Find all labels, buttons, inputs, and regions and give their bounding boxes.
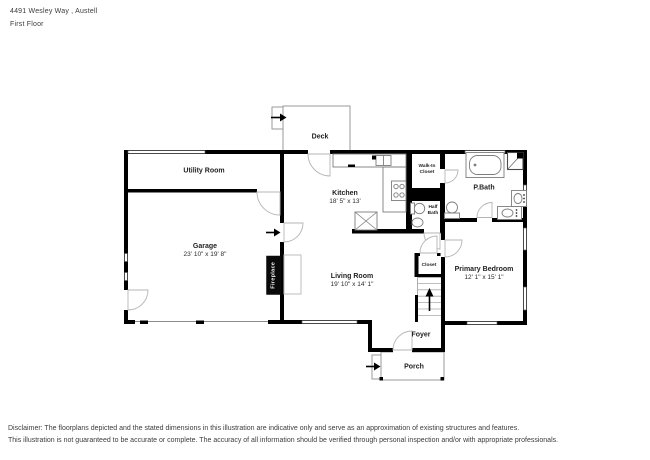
stove xyxy=(392,181,407,201)
pbath-wall-sink xyxy=(512,191,527,207)
kitchen-island xyxy=(355,212,377,230)
room-label-deck: Deck xyxy=(312,132,329,141)
fireplace-label: Fireplace xyxy=(271,262,277,289)
floorplan-drawing xyxy=(0,0,650,460)
room-label-garage: Garage 23' 10" x 19' 8" xyxy=(184,242,227,260)
disclaimer-line-1: Disclaimer: The floorplans depicted and … xyxy=(8,425,519,432)
pbath-vanity-sink xyxy=(498,207,522,220)
halfbath-toilet xyxy=(411,203,425,214)
room-label-p-bath: P.Bath xyxy=(473,183,494,192)
pbath-toilet xyxy=(445,202,460,219)
deck-outline xyxy=(272,106,350,151)
room-label-porch: Porch xyxy=(404,362,424,371)
room-label-utility-room: Utility Room xyxy=(183,166,224,175)
shower xyxy=(508,153,524,170)
room-label-walk-in-closet: Walk-In Closet xyxy=(419,164,436,176)
deck-entry-arrow-icon xyxy=(271,114,287,122)
room-label-half-bath: Half Bath xyxy=(428,205,439,217)
room-label-kitchen: Kitchen 18' 5" x 13' xyxy=(329,189,361,207)
porch-entry-arrow-icon xyxy=(366,363,381,371)
floorplan-page: 4491 Wesley Way , Austell First Floor xyxy=(0,0,650,460)
room-label-living-room: Living Room 19' 10" x 14' 1" xyxy=(331,272,374,290)
fireplace: Fireplace xyxy=(267,256,282,295)
disclaimer-line-2: This illustration is not guaranteed to b… xyxy=(8,437,558,444)
halfbath-sink xyxy=(411,218,423,227)
kitchen-sink xyxy=(372,156,391,166)
room-label-primary-bedroom: Primary Bedroom 12' 1" x 15' 1" xyxy=(455,265,514,283)
room-label-closet: Closet xyxy=(422,263,437,269)
room-label-foyer: Foyer xyxy=(411,330,430,339)
stairs-up-arrow-icon xyxy=(426,288,434,311)
garage-entry-arrow-icon xyxy=(266,229,281,237)
bathtub xyxy=(466,153,504,178)
hearth xyxy=(284,255,301,294)
